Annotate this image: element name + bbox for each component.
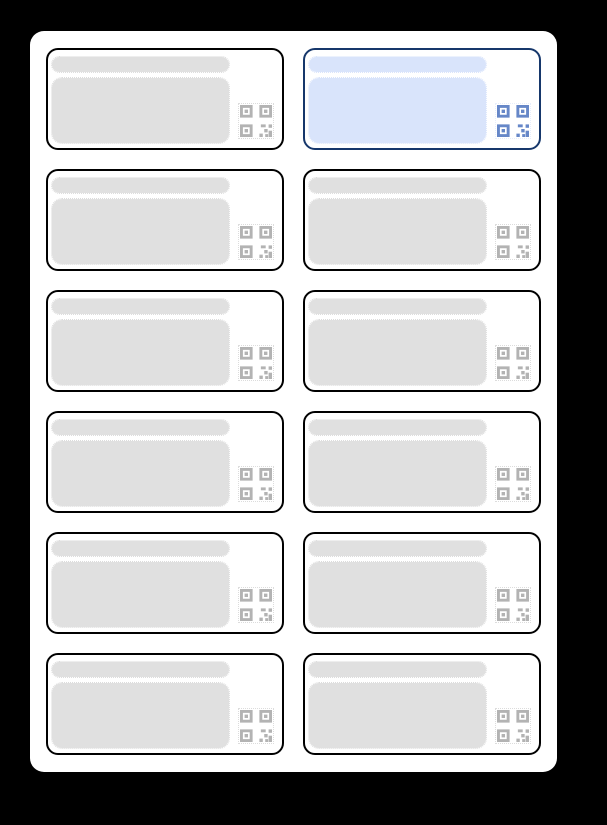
label-title-placeholder (52, 299, 229, 314)
label-body-placeholder (52, 199, 229, 264)
qr-placeholder-box (497, 468, 529, 500)
page-background (0, 0, 607, 825)
label-card[interactable] (303, 653, 541, 755)
qr-placeholder-box (240, 710, 272, 742)
label-title-placeholder (52, 541, 229, 556)
qr-code-icon (497, 589, 529, 621)
label-sheet (30, 31, 557, 772)
label-body-placeholder (309, 441, 486, 506)
qr-placeholder-box (497, 589, 529, 621)
qr-code-icon (497, 710, 529, 742)
label-card[interactable] (303, 48, 541, 150)
qr-placeholder-box (240, 226, 272, 258)
label-body-placeholder (52, 683, 229, 748)
qr-code-icon (240, 589, 272, 621)
qr-placeholder-box (240, 347, 272, 379)
label-body-placeholder (309, 199, 486, 264)
qr-code-icon (240, 710, 272, 742)
qr-placeholder-box (497, 226, 529, 258)
label-card[interactable] (303, 532, 541, 634)
label-card[interactable] (46, 653, 284, 755)
label-body-placeholder (52, 320, 229, 385)
label-title-placeholder (52, 662, 229, 677)
label-card[interactable] (303, 290, 541, 392)
label-body-placeholder (309, 683, 486, 748)
label-card[interactable] (46, 290, 284, 392)
qr-placeholder-box (497, 710, 529, 742)
label-title-placeholder (309, 299, 486, 314)
label-title-placeholder (52, 420, 229, 435)
label-card[interactable] (46, 169, 284, 271)
label-body-placeholder (52, 441, 229, 506)
qr-code-icon (497, 105, 529, 137)
qr-code-icon (240, 105, 272, 137)
qr-placeholder-box (240, 589, 272, 621)
qr-code-icon (240, 226, 272, 258)
qr-code-icon (497, 347, 529, 379)
label-title-placeholder (309, 57, 486, 72)
label-card[interactable] (46, 48, 284, 150)
label-card[interactable] (303, 411, 541, 513)
label-title-placeholder (309, 541, 486, 556)
label-card[interactable] (303, 169, 541, 271)
qr-code-icon (240, 468, 272, 500)
label-title-placeholder (309, 420, 486, 435)
label-body-placeholder (309, 562, 486, 627)
label-title-placeholder (309, 662, 486, 677)
label-title-placeholder (52, 57, 229, 72)
label-body-placeholder (52, 78, 229, 143)
label-body-placeholder (309, 78, 486, 143)
qr-code-icon (497, 468, 529, 500)
qr-placeholder-box (240, 468, 272, 500)
label-body-placeholder (52, 562, 229, 627)
qr-placeholder-box (497, 105, 529, 137)
qr-code-icon (497, 226, 529, 258)
qr-placeholder-box (240, 105, 272, 137)
label-title-placeholder (309, 178, 486, 193)
qr-placeholder-box (497, 347, 529, 379)
label-title-placeholder (52, 178, 229, 193)
label-card[interactable] (46, 532, 284, 634)
label-card[interactable] (46, 411, 284, 513)
qr-code-icon (240, 347, 272, 379)
label-body-placeholder (309, 320, 486, 385)
